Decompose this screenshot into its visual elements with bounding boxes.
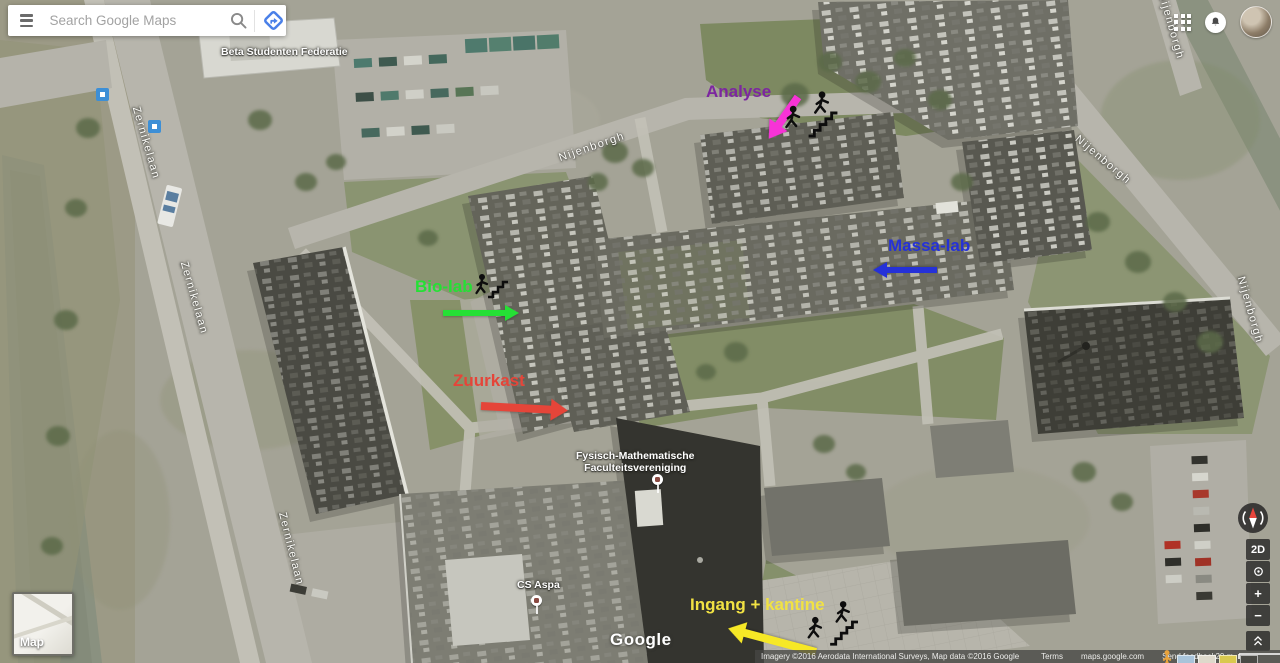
map-view-toggle[interactable]: Map [12,592,74,656]
poi-marker-icon[interactable] [531,595,542,606]
search-icon[interactable] [228,8,247,34]
poi-label-cs-aspa[interactable]: CS Aspa [517,579,560,591]
apps-grid-icon[interactable] [1174,14,1191,31]
target-icon [1251,564,1266,579]
divider [254,10,255,32]
stairs-climb-icon [474,268,508,300]
imagery-thumbnail[interactable] [1219,655,1237,663]
bell-icon [1209,16,1222,29]
my-location-button[interactable] [1246,561,1270,582]
imagery-thumbnail[interactable] [1198,655,1216,663]
annotation-label-massa-lab: Massa-lab [888,236,970,256]
menu-icon[interactable] [20,14,33,27]
poi-label-beta-studenten-federatie[interactable]: Beta Studenten Federatie [221,46,348,58]
poi-marker-icon[interactable] [652,474,663,485]
zoom-out-button[interactable]: − [1246,605,1270,626]
notifications-button[interactable] [1205,12,1226,33]
map-controls-column: 2D + − [1246,539,1270,626]
google-logo: Google [610,630,672,650]
imagery-thumbnail[interactable] [1240,655,1258,663]
search-bar [8,5,286,36]
pegman-icon[interactable] [1160,650,1174,663]
annotation-arrow-bio-lab [443,305,519,321]
satellite-map-canvas[interactable] [0,0,1280,663]
expand-controls-button[interactable] [1246,631,1270,651]
search-input[interactable] [47,12,228,29]
poi-label-fysisch-mathematische[interactable]: Fysisch-Mathematische Faculteitsverenigi… [576,450,694,474]
annotation-label-analyse: Analyse [706,82,771,102]
account-area [1174,6,1272,38]
annotation-arrow-massa-lab [873,262,937,278]
directions-icon[interactable] [261,6,286,36]
double-chevron-up-icon [1251,634,1265,648]
compass-button[interactable] [1237,502,1269,534]
annotation-label-bio-lab: Bio-lab [415,277,473,297]
google-maps-window: Zernikelaan Zernikelaan Zernikelaan Nije… [0,0,1280,663]
zoom-in-button[interactable]: + [1246,583,1270,604]
stairs-climb-icon [783,88,838,138]
terms-link[interactable]: Terms [1041,652,1063,661]
annotation-label-zuurkast: Zuurkast [453,371,525,391]
annotation-arrow-zuurkast [480,395,568,422]
account-avatar[interactable] [1240,6,1272,38]
map-toggle-label: Map [20,635,44,649]
stairs-climb-icon [806,592,858,652]
imagery-thumbnail[interactable] [1177,655,1195,663]
imagery-attribution: Imagery ©2016 Aerodata International Sur… [761,652,1019,661]
view-2d-button[interactable]: 2D [1246,539,1270,560]
imagery-tools-row [1160,650,1258,663]
annotation-label-ingang-kantine: Ingang + kantine [690,595,825,615]
maps-site-link[interactable]: maps.google.com [1081,652,1144,661]
